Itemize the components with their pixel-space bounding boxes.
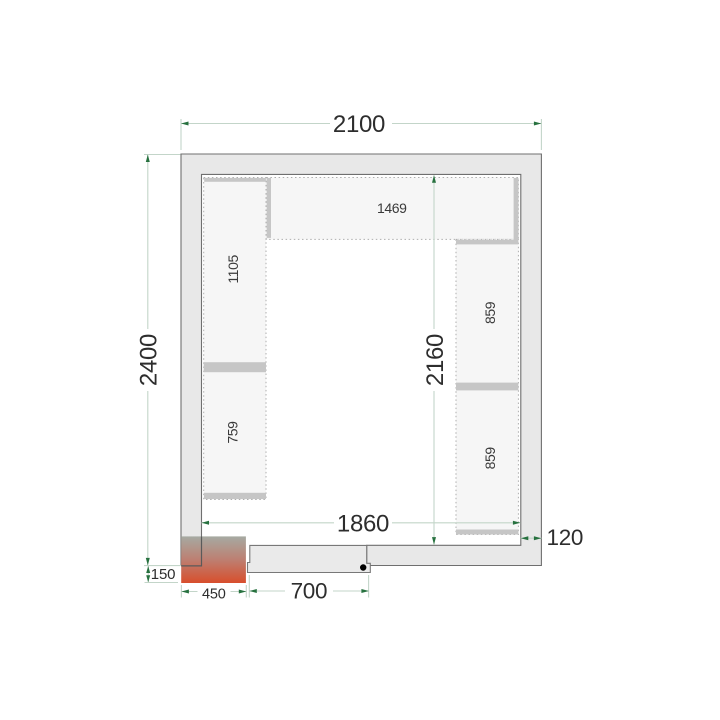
svg-text:1105: 1105: [225, 255, 241, 284]
svg-text:2400: 2400: [136, 334, 163, 386]
svg-text:1860: 1860: [337, 511, 389, 538]
svg-text:120: 120: [547, 525, 584, 550]
svg-text:150: 150: [151, 566, 175, 583]
svg-text:759: 759: [225, 421, 241, 444]
svg-text:2160: 2160: [422, 334, 449, 386]
svg-text:450: 450: [202, 587, 226, 603]
svg-text:2100: 2100: [333, 111, 385, 138]
svg-text:1469: 1469: [377, 200, 407, 216]
svg-text:700: 700: [291, 579, 328, 604]
svg-text:859: 859: [482, 447, 498, 470]
svg-text:859: 859: [482, 301, 498, 324]
